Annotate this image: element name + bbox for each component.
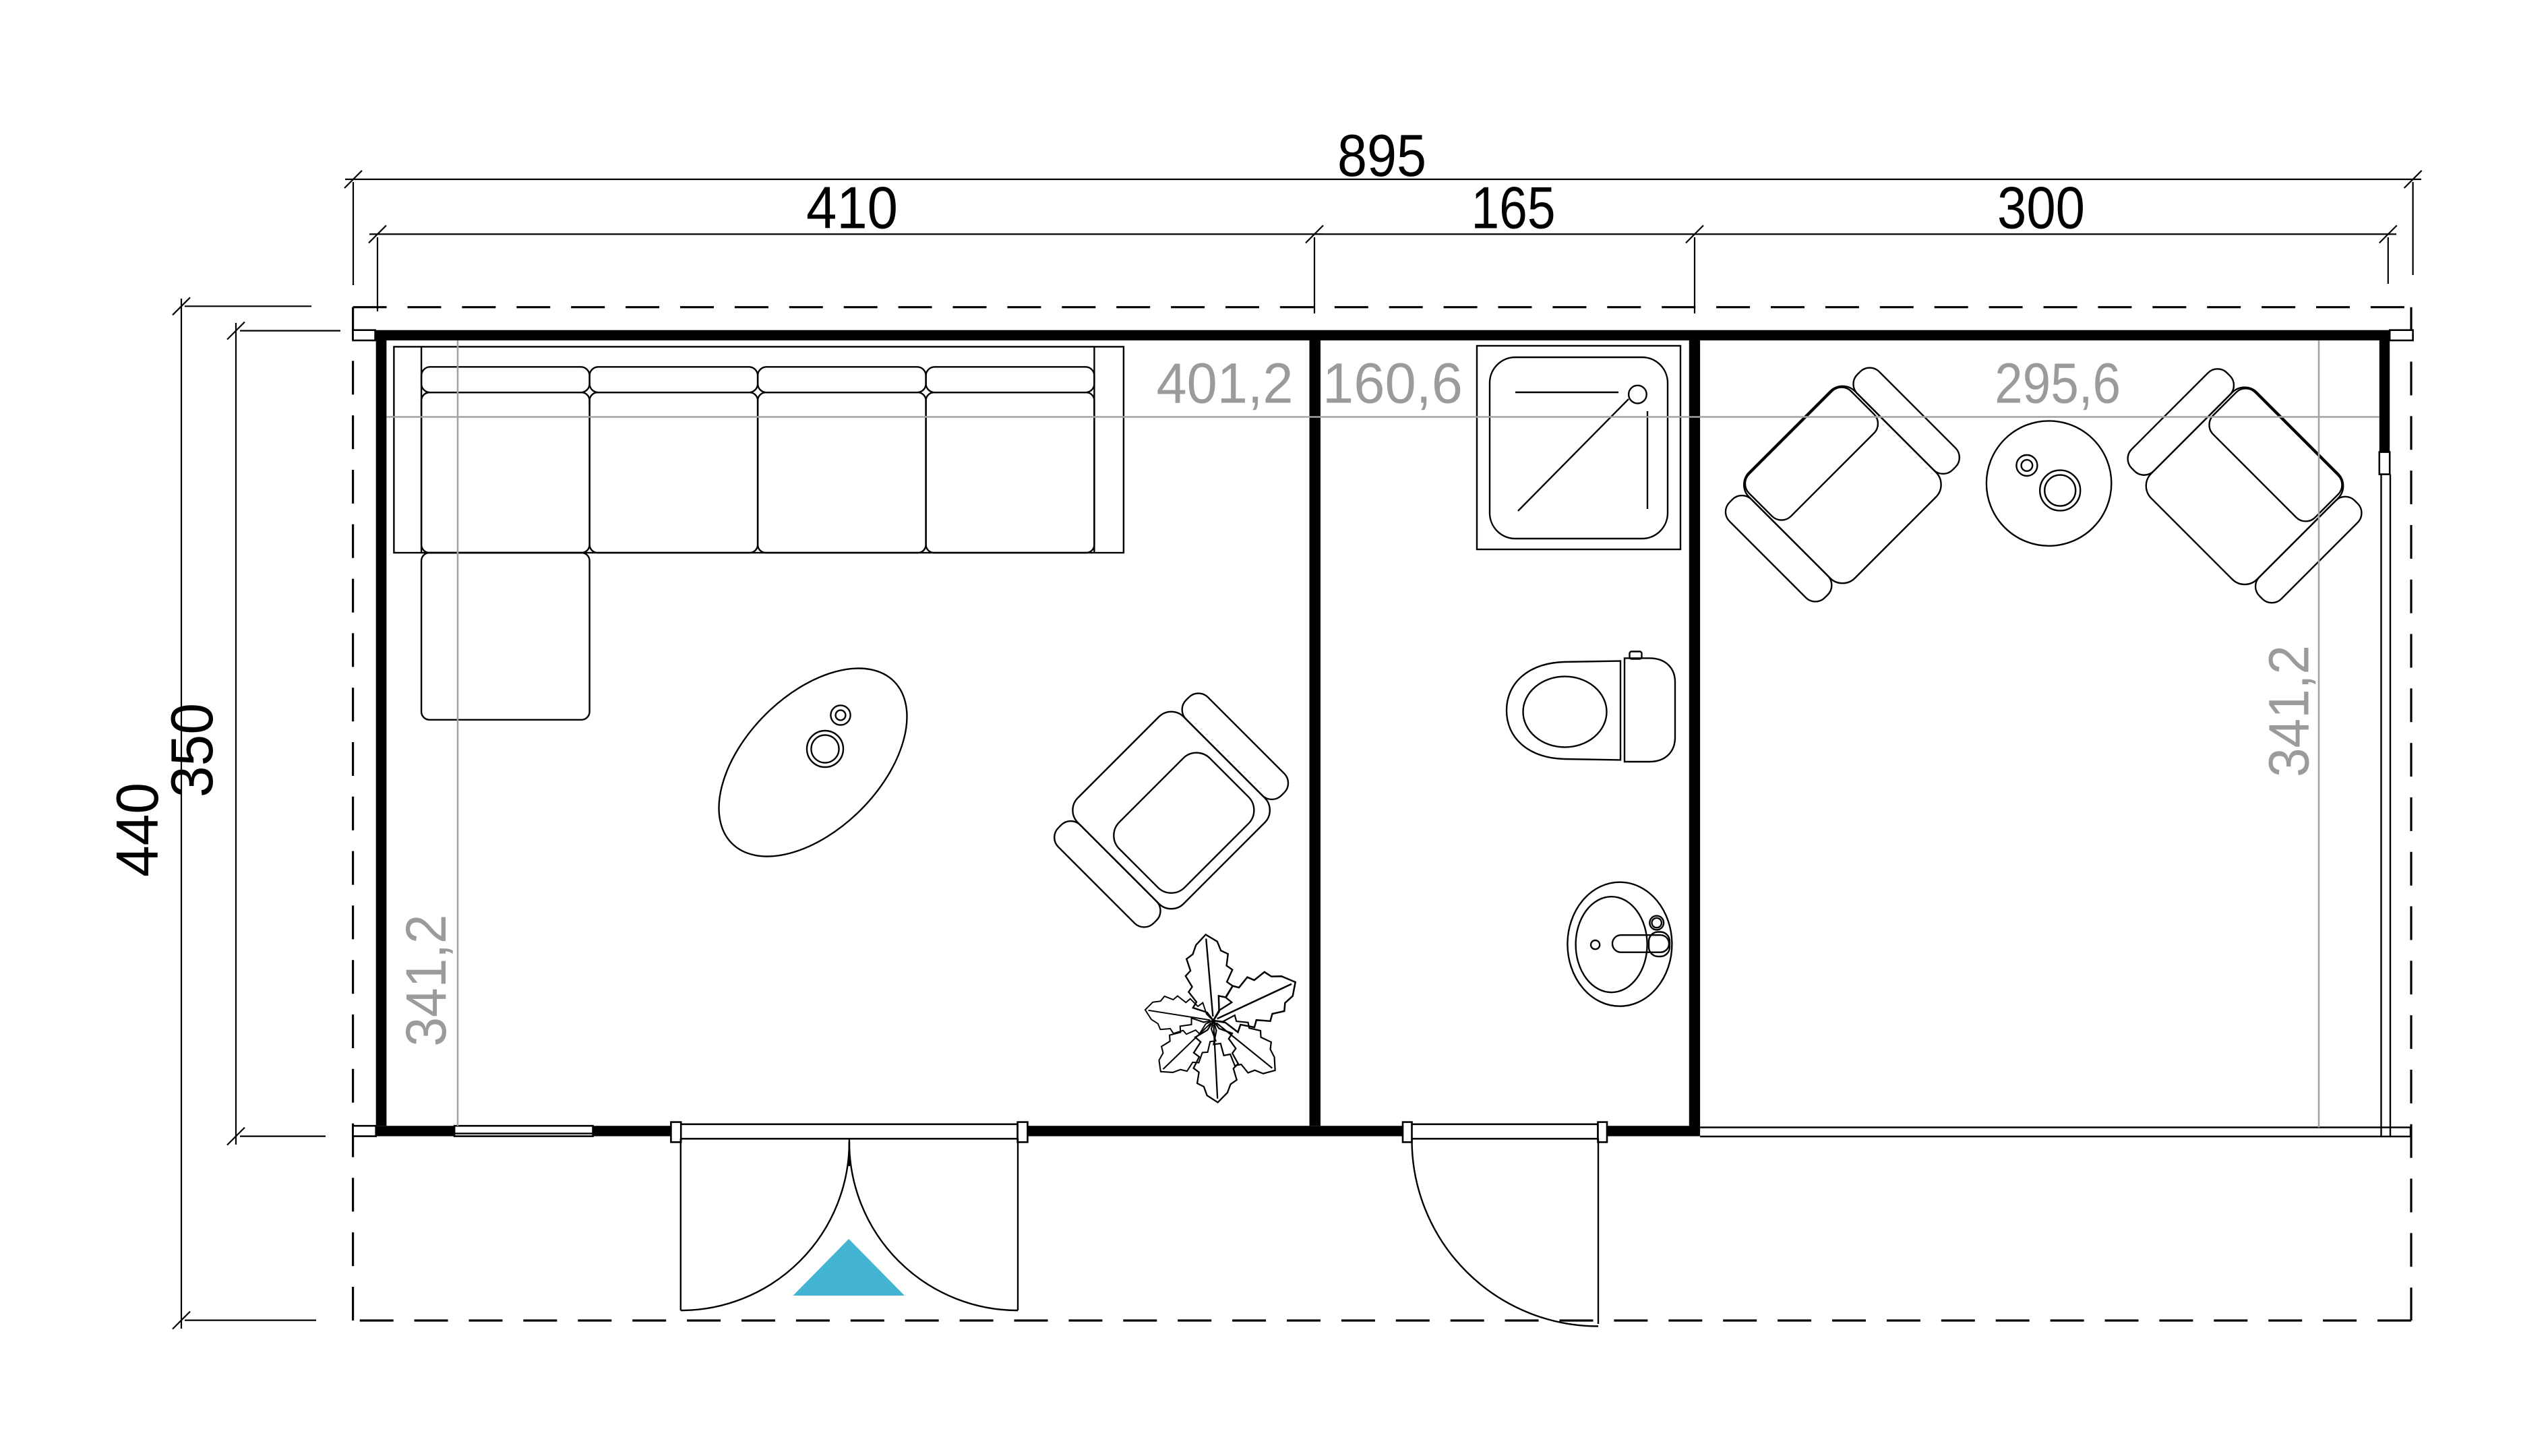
svg-text:401,2: 401,2 — [1157, 352, 1294, 415]
svg-text:895: 895 — [1337, 122, 1426, 189]
svg-text:300: 300 — [1997, 175, 2085, 241]
svg-text:350: 350 — [158, 703, 225, 797]
svg-text:341,2: 341,2 — [2257, 645, 2321, 777]
svg-text:410: 410 — [806, 175, 898, 241]
svg-text:341,2: 341,2 — [394, 915, 458, 1047]
svg-text:160,6: 160,6 — [1323, 352, 1463, 415]
svg-text:165: 165 — [1472, 175, 1556, 241]
svg-text:295,6: 295,6 — [1995, 352, 2121, 415]
